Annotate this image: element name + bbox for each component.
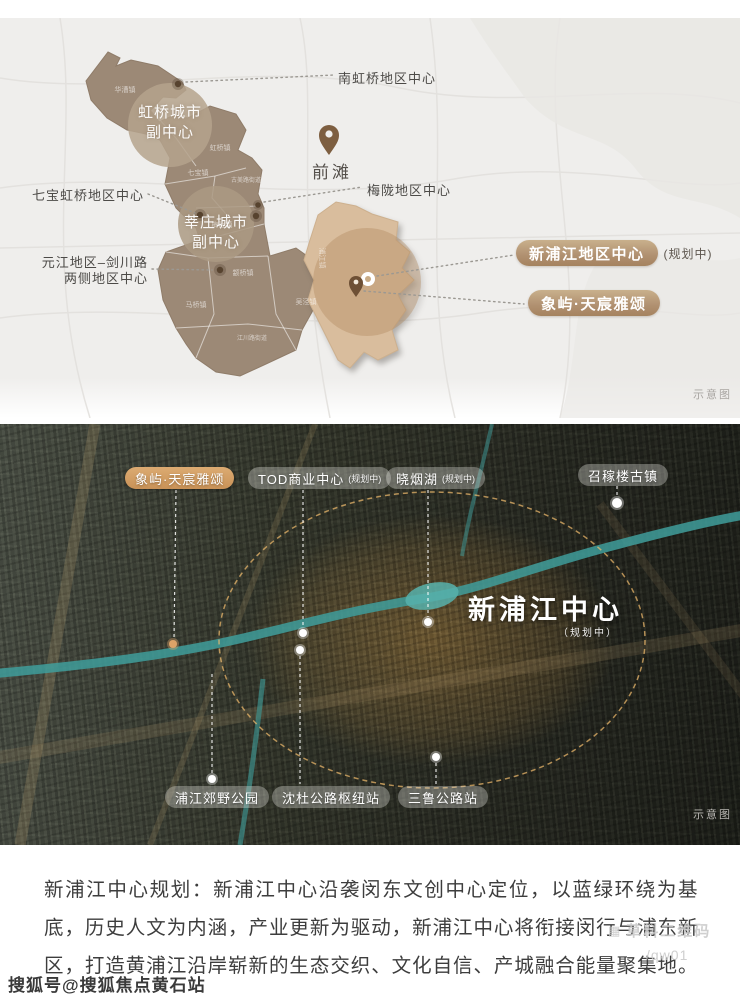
- sohu-account-watermark: 搜狐号@搜狐焦点黄石站: [8, 971, 206, 996]
- label-hongqiao-line2: 副中心: [120, 123, 220, 143]
- lake-dot: [424, 618, 432, 626]
- nanhongqiao-dot: [172, 78, 184, 90]
- lake: [403, 578, 461, 615]
- photo-center-title: 新浦江中心: [468, 588, 623, 627]
- pill-label: 浦江郊野公园: [175, 788, 259, 807]
- label-hongqiao-subcenter: 虹桥城市 副中心: [120, 103, 220, 143]
- town-label: 虹桥镇: [210, 143, 231, 152]
- tod-dot: [299, 629, 307, 637]
- pill-sanlu-station: 三鲁公路站: [398, 786, 488, 808]
- label-hongqiao-line1: 虹桥城市: [120, 103, 220, 123]
- shendu-station-dot: [296, 646, 304, 654]
- label-xinzhuang-line2: 副中心: [166, 233, 266, 253]
- pill-label: TOD商业中心: [258, 469, 344, 488]
- planning-description: 新浦江中心规划：新浦江中心沿袭闵东文创中心定位，以蓝绿环绕为基 底，历史人文为内…: [44, 871, 698, 985]
- pill-tod-mall: TOD商业中心 (规划中): [248, 467, 391, 489]
- project-location-dot: [169, 640, 177, 648]
- photo-center-subtitle: （规划中）: [558, 624, 618, 639]
- label-xinzhuang-subcenter: 莘庄城市 副中心: [166, 213, 266, 253]
- badge-new-pujiang-center: 新浦江地区中心: [516, 240, 658, 266]
- pill-xiaoyan-lake: 晓烟湖 (规划中): [386, 467, 485, 489]
- town-label: 江川路街道: [237, 334, 267, 342]
- qr-icon: ▦: [608, 923, 622, 939]
- aerial-rendering: 象屿·天宸雅颂 TOD商业中心 (规划中) 晓烟湖 (规划中) 召稼楼古镇 浦江…: [0, 424, 740, 845]
- town-label: 华漕镇: [115, 85, 136, 94]
- label-nanhongqiao-center: 南虹桥地区中心: [338, 68, 436, 87]
- town-label: 七宝镇: [188, 168, 209, 177]
- pill-pujiang-park: 浦江郊野公园: [165, 786, 269, 808]
- planning-zone-ellipse: [219, 492, 645, 788]
- pill-label: 沈杜公路枢纽站: [282, 788, 380, 807]
- sanlu-station-dot: [432, 753, 440, 761]
- label-yuanjiang-line2: 两侧地区中心: [26, 271, 148, 287]
- town-label: 吴泾镇: [296, 297, 317, 306]
- description-line: 新浦江中心规划：新浦江中心沿袭闵东文创中心定位，以蓝绿环绕为基: [44, 871, 698, 909]
- district-planning-map: 华漕镇 虹桥镇 七宝镇 古美路街道 梅陇镇 颛桥镇 马桥镇 吴泾镇 江川路街道 …: [0, 18, 740, 418]
- new-pujiang-ring-marker: [361, 272, 375, 286]
- pill-zhaojialou: 召稼楼古镇: [578, 464, 668, 486]
- qr-watermark: ▦ 草料二维码 /qw01: [608, 920, 711, 963]
- badge-project-name: 象屿·天宸雅颂: [528, 290, 660, 316]
- town-label: 马桥镇: [186, 300, 207, 309]
- label-yuanjiang-line1: 元江地区–剑川路: [26, 255, 148, 271]
- map-sketch-watermark: 示意图: [693, 386, 732, 402]
- badge-row-project: 象屿·天宸雅颂: [528, 290, 660, 316]
- pill-label: 象屿·天宸雅颂: [135, 469, 224, 488]
- yuanjiang-dot: [214, 264, 226, 276]
- meilong-dot: [253, 200, 263, 210]
- badge-new-pujiang-suffix: (规划中): [664, 245, 713, 262]
- pill-label: 召稼楼古镇: [588, 466, 658, 485]
- pill-shendu-hub: 沈杜公路枢纽站: [272, 786, 390, 808]
- park-dot: [208, 775, 216, 783]
- photo-sketch-watermark: 示意图: [693, 806, 732, 822]
- label-meilong-center: 梅陇地区中心: [367, 180, 451, 199]
- qr-watermark-code: /qw01: [646, 947, 711, 963]
- pill-label: 三鲁公路站: [408, 788, 478, 807]
- label-qibao-center: 七宝虹桥地区中心: [32, 185, 144, 204]
- pill-label: 晓烟湖: [396, 469, 438, 488]
- map-east-landmass: [470, 18, 740, 218]
- town-label: 浦江镇: [318, 248, 327, 269]
- qiantan-pin-icon: [319, 125, 339, 155]
- town-label: 古美路街道: [231, 176, 261, 184]
- town-label: 颛桥镇: [233, 268, 254, 277]
- zhaojialou-dot: [612, 498, 622, 508]
- pill-suffix: (规划中): [348, 472, 381, 485]
- label-qiantan: 前滩: [312, 158, 352, 183]
- label-yuanjiang-center: 元江地区–剑川路 两侧地区中心: [26, 255, 148, 287]
- pill-project: 象屿·天宸雅颂: [125, 467, 234, 489]
- pill-suffix: (规划中): [442, 472, 475, 485]
- label-xinzhuang-line1: 莘庄城市: [166, 213, 266, 233]
- qr-watermark-label: ▦ 草料二维码: [608, 920, 711, 941]
- qr-watermark-text: 草料二维码: [626, 920, 711, 941]
- badge-row-new-pujiang: 新浦江地区中心 (规划中): [516, 240, 713, 266]
- description-line: 底，历史人文为内涵，产业更新为驱动，新浦江中心将衔接闵行与浦东新: [44, 909, 698, 947]
